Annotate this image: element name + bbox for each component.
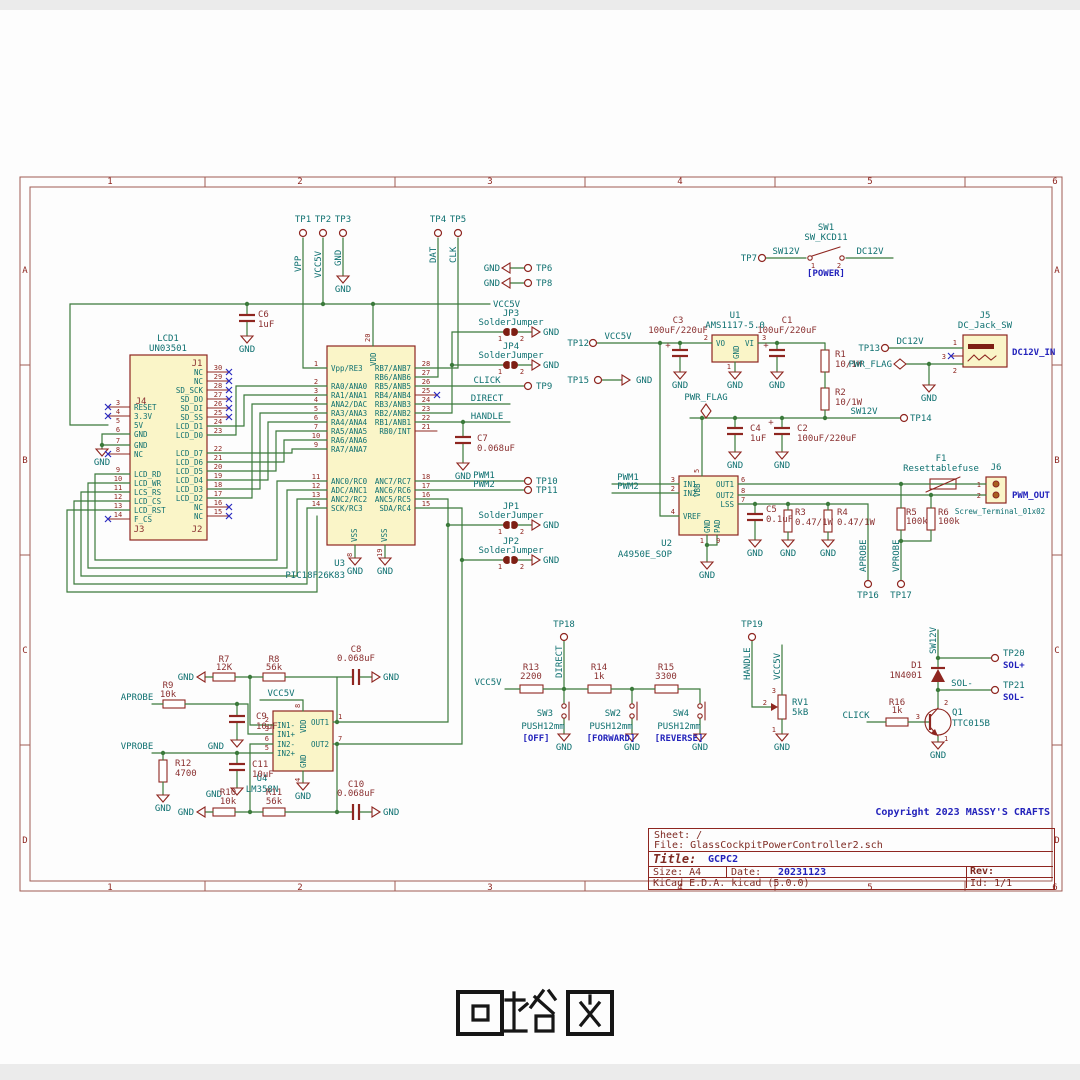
r16-body [886, 718, 908, 726]
pin-number: 1 [700, 537, 704, 545]
gnd-symbol [157, 795, 169, 802]
pin-number: 1 [772, 726, 776, 734]
pin-name: RA5/ANA5 [331, 427, 367, 436]
pin-number: 5 [116, 417, 120, 425]
r5-body [897, 508, 905, 530]
pin-name: SD_SCK [176, 386, 204, 395]
ref-label: A4950E_SOP [618, 550, 673, 560]
note-label: SOL- [1003, 693, 1025, 703]
pin-number: 10 [114, 475, 122, 483]
grid-label: 2 [297, 883, 302, 893]
junction-dot [450, 363, 454, 367]
tp-pad [992, 655, 999, 662]
pin-number: 18 [422, 473, 430, 481]
gnd-symbol [749, 540, 761, 547]
field-label: C5 [766, 505, 777, 515]
field-label: C7 [477, 434, 488, 444]
pin-name: GND [703, 519, 712, 533]
field-label: C11 [252, 760, 268, 770]
pin-name: LCD_RST [134, 506, 166, 515]
pin-name: LCS_RS [134, 488, 162, 497]
field-label: 100k [938, 517, 960, 527]
pin-number: 4 [314, 396, 318, 404]
junction-dot [371, 302, 375, 306]
net-label: VCC5V [773, 652, 783, 680]
junction-dot [248, 810, 252, 814]
pin-number: 27 [422, 369, 430, 377]
global-label-arrow [532, 520, 540, 530]
pin-number: 2 [944, 699, 948, 707]
grid-label: A [1054, 266, 1060, 276]
r15-body [655, 685, 678, 693]
pin-number: 17 [422, 482, 430, 490]
ref-label: U3 [334, 559, 345, 569]
pin-name: LCD_D6 [176, 458, 204, 467]
pin-name: ANC5/RC5 [375, 495, 411, 504]
global-label-arrow [372, 672, 380, 682]
ref-label: AMS1117-5.0 [705, 321, 765, 331]
switch-contact [630, 714, 634, 718]
grid-label: 6 [1052, 177, 1057, 187]
pin-number: 1 [953, 339, 957, 347]
pin-name: IN2- [277, 740, 295, 749]
field-label: 100uF/220uF [648, 326, 708, 336]
grid-label: 3 [487, 177, 492, 187]
pin-name: LCD_D1 [176, 422, 203, 431]
title-label: Title: [653, 853, 696, 865]
grid-label: D [22, 836, 27, 846]
ref-label: TP11 [536, 486, 558, 496]
junction-dot [658, 341, 662, 345]
ref-label: SolderJumper [478, 351, 544, 361]
pin-name: NC [134, 450, 143, 459]
ref-label: TP7 [741, 254, 757, 264]
pin-name: Screw_Terminal_01x02 [955, 507, 1045, 516]
pin-name: Vpp/RE3 [331, 364, 363, 373]
pin-name: RB2/ANB2 [375, 409, 411, 418]
grid-label: B [1054, 456, 1059, 466]
ref-label: TP17 [890, 591, 912, 601]
net-label: APROBE [121, 693, 154, 703]
pin-name: PAD [713, 519, 722, 533]
pin-number: 3 [916, 713, 920, 721]
field-label: 12K [216, 663, 233, 673]
pin-number: 28 [214, 382, 222, 390]
field-label: 10k [160, 690, 177, 700]
global-label-arrow [532, 555, 540, 565]
field-label: C2 [797, 424, 808, 434]
net-label: VCC5V [314, 250, 324, 278]
switch-contact [698, 714, 702, 718]
grid-label: 4 [677, 177, 682, 187]
field-label: 100uF/220uF [797, 434, 857, 444]
pin-name: RB1/ANB1 [375, 418, 411, 427]
grid-label: C [22, 646, 27, 656]
net-label: GND [178, 808, 194, 818]
junction-dot [235, 702, 239, 706]
field-label: 100uF/220uF [757, 326, 817, 336]
wire [660, 343, 679, 516]
pin-number: 17 [214, 490, 222, 498]
pin-name: RB4/ANB4 [375, 391, 412, 400]
net-label: GND [335, 285, 351, 295]
r7-body [213, 673, 235, 681]
field-label: R2 [835, 388, 846, 398]
pin-number: 24 [214, 418, 222, 426]
junction-dot [786, 502, 790, 506]
r11-body [263, 808, 285, 816]
field-label: D1 [911, 661, 922, 671]
pin-number: 15 [422, 500, 430, 508]
field-label: 1uF [258, 320, 274, 330]
gnd-symbol [771, 372, 783, 379]
gnd-symbol [297, 783, 309, 790]
net-label: GND [727, 381, 743, 391]
tp-pad [320, 230, 327, 237]
ref-label: TP9 [536, 382, 552, 392]
field-label: 0.47/1W [837, 518, 876, 528]
tb-divider [966, 866, 967, 888]
pin-name: LCD_D5 [176, 467, 203, 476]
ref-label: TP8 [536, 279, 552, 289]
r6-body [927, 508, 935, 530]
pin-number: 3 [772, 687, 776, 695]
switch-contact [562, 714, 566, 718]
net-label: GND [624, 743, 640, 753]
field-label: 0.47/1W [795, 518, 834, 528]
field-label: R1 [835, 350, 846, 360]
terminal-pad [993, 481, 999, 487]
grid-label: 1 [107, 883, 112, 893]
grid-label: A [22, 266, 28, 276]
pin-number: 2 [704, 334, 708, 342]
tp-pad [561, 634, 568, 641]
pin-name: LCD_D4 [176, 476, 204, 485]
pin-number: 26 [214, 400, 222, 408]
ref-label: SW2 [605, 709, 621, 719]
pin-number: 8 [116, 446, 120, 454]
ref-label: SW_KCD11 [804, 233, 847, 243]
net-label: GND [543, 328, 559, 338]
pin-number: 2 [671, 485, 675, 493]
net-label: DC12V [856, 247, 884, 257]
ref-label: F1 [936, 454, 947, 464]
net-label: VCC5V [604, 332, 632, 342]
pin-name: OUT1 [311, 718, 329, 727]
pin-number: 2 [520, 528, 524, 536]
pin-number: 2 [953, 367, 957, 375]
pin-number: 2 [314, 378, 318, 386]
tp-pad [525, 478, 532, 485]
r14-body [588, 685, 611, 693]
net-label: DIRECT [471, 394, 504, 404]
junction-dot [446, 523, 450, 527]
net-label: GND [377, 567, 393, 577]
global-label-arrow [197, 672, 205, 682]
net-label: HANDLE [471, 412, 504, 422]
pin-name: 5V [134, 421, 144, 430]
ref-label: RV1 [792, 698, 808, 708]
net-label: GND [383, 673, 399, 683]
pin-name: GND [299, 754, 308, 768]
pin-number: 6 [314, 414, 318, 422]
symbol-line [812, 247, 840, 256]
tp-pad [749, 634, 756, 641]
schematic-canvas: TP1TP2TP3TP4TP5VPPVCC5VGNDDATCLKGNDC61uF… [0, 0, 1080, 1080]
net-label: PWM2 [473, 480, 495, 490]
field-label: 4700 [175, 769, 197, 779]
wire [752, 641, 771, 707]
pin-number: 7 [338, 735, 342, 743]
field-label: R12 [175, 759, 191, 769]
ref-label: LCD1 [157, 334, 179, 344]
pin-number: 13 [114, 502, 122, 510]
net-label: DIRECT [555, 645, 565, 678]
pin-number: 15 [214, 508, 222, 516]
note-label: DC12V_IN [1012, 348, 1055, 358]
ref-label: SW1 [818, 223, 834, 233]
junction-dot [678, 341, 682, 345]
global-label-arrow [372, 807, 380, 817]
date-value: 20231123 [778, 868, 826, 878]
pin-name: GND [134, 441, 148, 450]
pin-name: ADC/ANC1 [331, 486, 367, 495]
gnd-symbol [349, 558, 361, 565]
pin-number: 16 [214, 499, 222, 507]
pin-number: 6 [116, 426, 120, 434]
junction-dot [753, 502, 757, 506]
pin-name: GND [732, 345, 741, 359]
ref-label: TP18 [553, 620, 575, 630]
field-label: C3 [673, 316, 684, 326]
junction-dot [705, 543, 709, 547]
field-label: 0.068uF [337, 654, 375, 664]
ref-label: SolderJumper [478, 511, 544, 521]
ref-label: TP4 [430, 215, 446, 225]
net-label: GND [334, 250, 344, 266]
wire [207, 449, 327, 453]
grid-label: 1 [107, 177, 112, 187]
ref-label: TP13 [858, 344, 880, 354]
global-label-arrow [502, 278, 510, 288]
switch-contact [840, 256, 844, 260]
junction-dot [775, 341, 779, 345]
junction-dot [235, 751, 239, 755]
pin-number: 23 [214, 427, 222, 435]
ref-label: Resettablefuse [903, 464, 979, 474]
pin-number: 1 [727, 363, 731, 371]
pin-number: 5 [693, 469, 701, 473]
pin-number: 26 [422, 378, 430, 386]
junction-dot [245, 302, 249, 306]
tb-divider [648, 851, 1053, 852]
net-label: GND [484, 264, 500, 274]
field-label: 10uF [252, 770, 274, 780]
pin-number: 4 [671, 508, 675, 516]
pin-number: 2 [763, 699, 767, 707]
pwr-flag-icon [894, 359, 906, 369]
tp-pad [525, 280, 532, 287]
wire [901, 530, 931, 541]
pin-name: IN2+ [277, 749, 296, 758]
pin-name: 3.3V [134, 412, 153, 421]
junction-dot [823, 416, 827, 420]
net-label: DC12V [896, 337, 924, 347]
net-label: PWR_FLAG [849, 360, 892, 370]
net-label: GND [543, 521, 559, 531]
size-field: Size: A4 [653, 868, 701, 878]
field-label: 100k [906, 517, 928, 527]
pin-number: 16 [422, 491, 430, 499]
field-label: 1uF [750, 434, 766, 444]
net-label: GND [484, 279, 500, 289]
junction-dot [161, 751, 165, 755]
ref-label: J6 [991, 463, 1002, 473]
net-label: GND [347, 567, 363, 577]
net-label: GND [774, 461, 790, 471]
junction-dot [780, 416, 784, 420]
pin-name: NC [194, 503, 203, 512]
pin-number: 11 [312, 473, 320, 481]
net-label: GND [636, 376, 652, 386]
ref-label: UN03501 [149, 344, 187, 354]
pin-number: 3 [671, 476, 675, 484]
r2-body [821, 388, 829, 410]
net-label: GND [208, 742, 224, 752]
net-label: CLICK [473, 376, 501, 386]
ref-label: PUSH12mm [521, 722, 564, 732]
note-label: PWM_OUT [1012, 491, 1051, 501]
note-label: [POWER] [807, 269, 845, 279]
pin-name: ANC6/RC6 [375, 486, 412, 495]
tp-pad [455, 230, 462, 237]
junction-dot [100, 443, 104, 447]
tp-pad [882, 345, 889, 352]
pin-number: 19 [214, 472, 222, 480]
pin-number: 3 [116, 399, 120, 407]
wire [207, 404, 327, 498]
grid-label: D [1054, 836, 1059, 846]
net-label: GND [699, 571, 715, 581]
pin-name: VSS [380, 528, 389, 542]
gnd-symbol [231, 740, 243, 747]
pin-name: SD_DO [180, 395, 203, 404]
pin-name: RA3/ANA3 [331, 409, 367, 418]
ref-label: 5kB [792, 708, 808, 718]
pin-name: OUT2 [311, 740, 329, 749]
pin-number: 4 [294, 778, 302, 782]
grid-label: 3 [487, 883, 492, 893]
pin-name: RB7/ANB7 [375, 364, 411, 373]
pin-name: VREF [683, 512, 702, 521]
pin-number: 25 [422, 387, 430, 395]
ref-label: TP5 [450, 215, 466, 225]
field-label: J2 [192, 525, 203, 535]
tp-pad [525, 487, 532, 494]
jack-pin-bar [968, 344, 994, 349]
pin-number: 18 [214, 481, 222, 489]
pin-name: RA1/ANA1 [331, 391, 367, 400]
pin-number: 1 [498, 368, 502, 376]
pin-number: 1 [498, 335, 502, 343]
pin-number: 27 [214, 391, 222, 399]
wire [207, 431, 327, 471]
ref-label: TP21 [1003, 681, 1025, 691]
tp-pad [759, 255, 766, 262]
field-label: C4 [750, 424, 761, 434]
gnd-symbol [701, 562, 713, 569]
ref-label: TTC015B [952, 719, 990, 729]
net-label: GND [747, 549, 763, 559]
junction-dot [899, 482, 903, 486]
pin-number: 8 [741, 487, 745, 495]
gnd-symbol [822, 540, 834, 547]
grid-label: 2 [297, 177, 302, 187]
pin-number: 21 [214, 454, 222, 462]
pin-name: VDD [299, 719, 308, 733]
pin-name: ANC0/RC0 [331, 477, 368, 486]
grid-label: C [1054, 646, 1059, 656]
terminal-pad [993, 492, 999, 498]
pin-number: 2 [520, 335, 524, 343]
schematic-page: TP1TP2TP3TP4TP5VPPVCC5VGNDDATCLKGNDC61uF… [0, 0, 1080, 1080]
net-label: GND [780, 549, 796, 559]
grid-label: 5 [867, 177, 872, 187]
rev-label: Rev: [970, 867, 994, 877]
tp-pad [992, 687, 999, 694]
r8-body [263, 673, 285, 681]
pin-number: 10 [312, 432, 320, 440]
pin-number: 5 [314, 405, 318, 413]
net-label: CLK [449, 246, 459, 263]
field-label: 0.068uF [337, 789, 375, 799]
junction-dot [733, 416, 737, 420]
rv1-body [778, 695, 786, 719]
title-value: GCPC2 [708, 855, 738, 865]
date-label: Date: [731, 868, 761, 878]
net-label: GND [383, 808, 399, 818]
junction-dot [562, 687, 566, 691]
ref-label: PIC18F26K83 [285, 571, 345, 581]
net-label: GND [239, 345, 255, 355]
gnd-symbol [923, 385, 935, 392]
junction-dot [630, 687, 634, 691]
field-label: 0.1uF [766, 515, 793, 525]
pin-number: 23 [422, 405, 430, 413]
junction-dot [929, 493, 933, 497]
global-label-arrow [532, 360, 540, 370]
field-label: + [763, 341, 769, 351]
junction-dot [461, 420, 465, 424]
tp-pad [340, 230, 347, 237]
field-label: 10k [220, 797, 237, 807]
tp-pad [865, 581, 872, 588]
pin-name: IN1+ [277, 730, 296, 739]
pin-number: 2 [977, 492, 981, 500]
pot-wiper-arrow [771, 703, 778, 711]
pin-number: 19 [376, 549, 384, 557]
junction-dot [248, 675, 252, 679]
tp-pad [901, 415, 908, 422]
switch-contact [698, 704, 702, 708]
net-label: VPP [294, 255, 304, 272]
gnd-symbol [776, 452, 788, 459]
pin-number: 1 [498, 528, 502, 536]
pin-number: 8 [346, 553, 354, 557]
ref-label: PUSH12mm [657, 722, 700, 732]
junction-dot [936, 688, 940, 692]
tb-divider [726, 866, 727, 877]
